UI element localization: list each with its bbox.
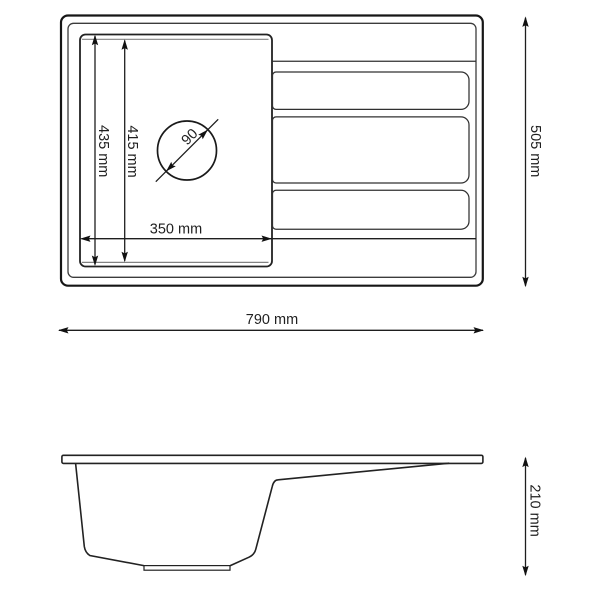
- svg-text:210 mm: 210 mm: [527, 484, 543, 536]
- svg-text:350 mm: 350 mm: [150, 221, 202, 237]
- svg-text:505 mm: 505 mm: [527, 125, 543, 177]
- svg-text:435 mm: 435 mm: [95, 125, 111, 177]
- svg-text:790 mm: 790 mm: [246, 312, 298, 328]
- svg-text:90: 90: [179, 126, 202, 149]
- svg-text:415 mm: 415 mm: [124, 125, 140, 177]
